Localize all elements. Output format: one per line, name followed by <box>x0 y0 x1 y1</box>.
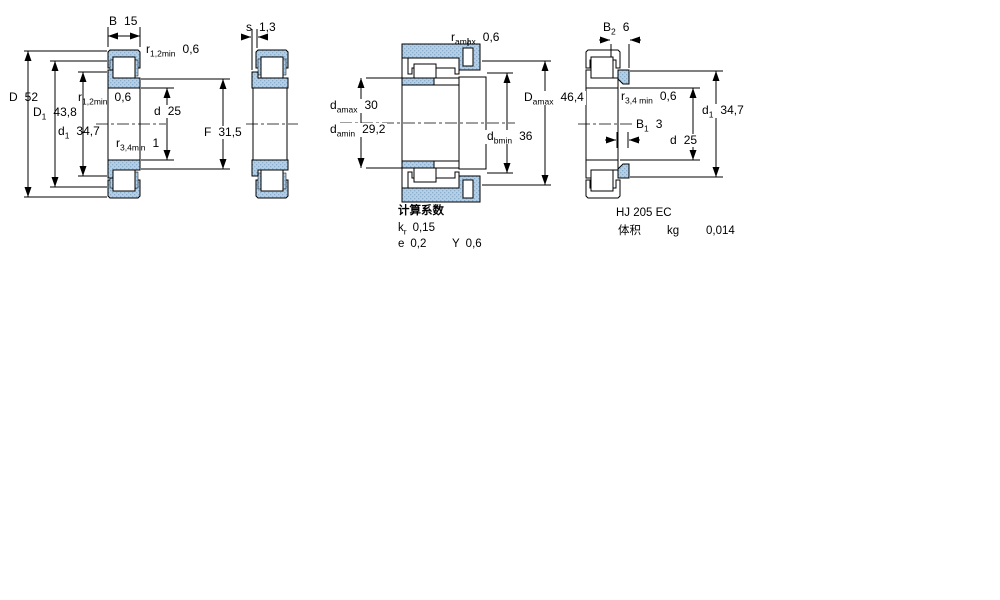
roller-top <box>591 57 613 79</box>
dim-label-B2: B26 <box>603 21 629 35</box>
dim-label-B: B15 <box>109 15 137 29</box>
dim-label-dbmin: dbmin36 <box>485 130 534 144</box>
dim-label-d1: d134,7 <box>58 125 100 139</box>
dim-label-r12-top: r1,2min0,6 <box>146 43 199 57</box>
housing-relief-groove-bottom <box>463 180 473 198</box>
bearing-inner-ring-top <box>434 78 459 85</box>
volume-value: 0,014 <box>706 225 735 237</box>
dim-label-d: d25 <box>152 105 183 118</box>
dim-label-d1: d134,7 <box>700 104 746 118</box>
dim-label-D: D52 <box>9 91 38 104</box>
bearing-roller-bottom <box>414 168 436 182</box>
dim-label-D1: D143,8 <box>33 106 77 120</box>
hj-ring-top <box>618 70 629 84</box>
roller-bottom <box>591 169 613 191</box>
roller-bottom <box>261 170 283 191</box>
calc-factor-e: e0,2 <box>398 238 426 250</box>
dim-label-damin: damin29,2 <box>328 123 387 137</box>
roller-top <box>113 57 135 79</box>
bearing-roller-top <box>414 64 436 78</box>
calc-factor-kr: kr0,15 <box>398 222 435 237</box>
hj-ring-bottom <box>618 164 629 178</box>
dim-label-damax: damax30 <box>328 99 380 113</box>
technical-drawing-canvas <box>0 0 1000 600</box>
product-designation: HJ 205 EC <box>616 207 672 219</box>
dim-label-r34min: r3,4 min0,6 <box>621 90 677 104</box>
housing-relief-groove-top <box>463 48 473 66</box>
dim-label-r34: r3,4min1 <box>116 137 159 151</box>
dim-label-d: d25 <box>668 134 699 147</box>
bearing-dimension-drawing-page: B15 r1,2min0,6 D52 D143,8 d134,7 r1,2min… <box>0 0 1000 600</box>
dim-label-ramax: ramax0,6 <box>451 31 499 45</box>
dim-label-s: s1,3 <box>246 21 276 34</box>
drawing-side-cross-section <box>241 29 298 198</box>
calc-factors-title: 计算系数 <box>398 205 444 217</box>
bearing-inner-ring-bottom <box>434 161 459 168</box>
roller-top <box>261 57 283 78</box>
roller-bottom <box>113 169 135 191</box>
dim-label-B1: B13 <box>636 118 662 132</box>
shaft-abutment-bottom <box>402 161 434 168</box>
dim-label-F: F31,5 <box>202 126 244 139</box>
calc-factor-Y: Y0,6 <box>452 238 482 250</box>
dim-label-Damax: Damax46,4 <box>522 91 586 105</box>
dim-label-r12-mid: r1,2min0,6 <box>78 91 131 105</box>
volume-label: 体积 <box>618 225 641 237</box>
drawing-mounting-dimensions <box>340 38 551 202</box>
volume-unit: kg <box>667 225 679 237</box>
shaft-abutment-top <box>402 78 434 85</box>
